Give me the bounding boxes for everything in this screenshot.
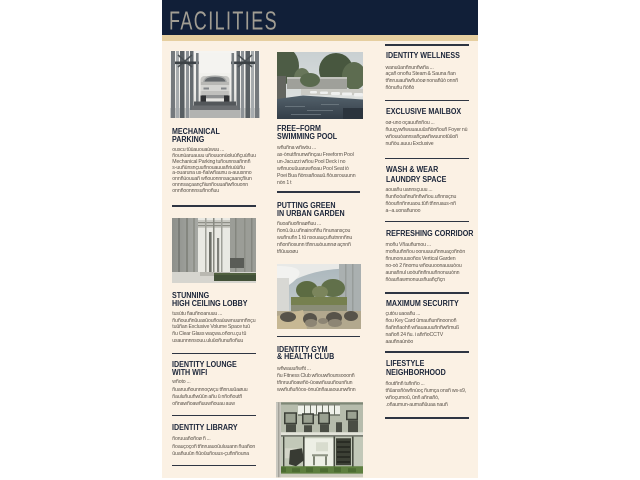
svg-text:FACILITIES: FACILITIES — [169, 7, 278, 34]
